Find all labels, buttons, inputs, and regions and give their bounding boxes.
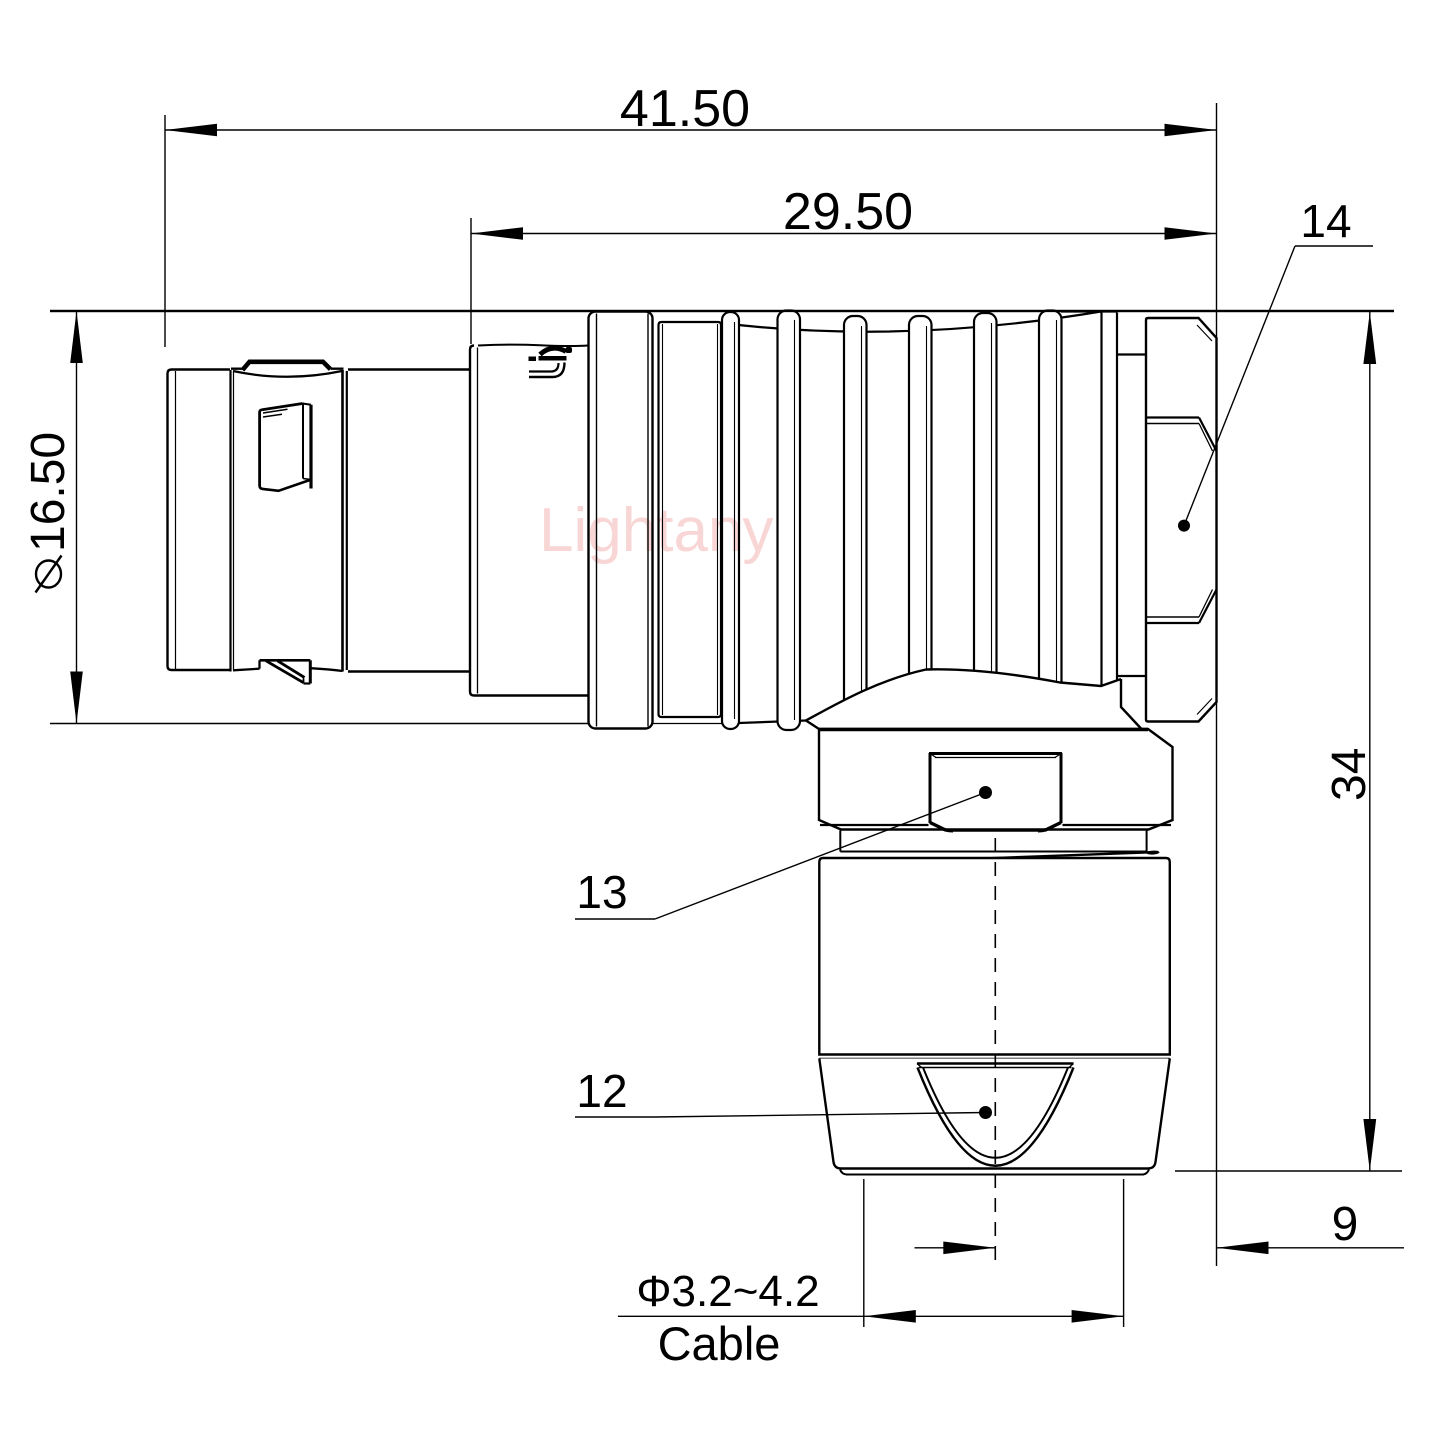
svg-text:41.50: 41.50	[620, 80, 750, 138]
svg-text:29.50: 29.50	[783, 183, 913, 241]
svg-text:16.50: 16.50	[22, 432, 75, 552]
svg-text:Φ3.2~4.2: Φ3.2~4.2	[636, 1267, 819, 1316]
svg-text:Lightany: Lightany	[539, 496, 773, 565]
svg-text:12: 12	[576, 1065, 627, 1117]
svg-text:9: 9	[1332, 1198, 1359, 1251]
svg-text:14: 14	[1300, 195, 1351, 247]
svg-text:Cable: Cable	[658, 1317, 781, 1370]
svg-text:34: 34	[1323, 748, 1376, 801]
svg-text:13: 13	[576, 866, 627, 918]
